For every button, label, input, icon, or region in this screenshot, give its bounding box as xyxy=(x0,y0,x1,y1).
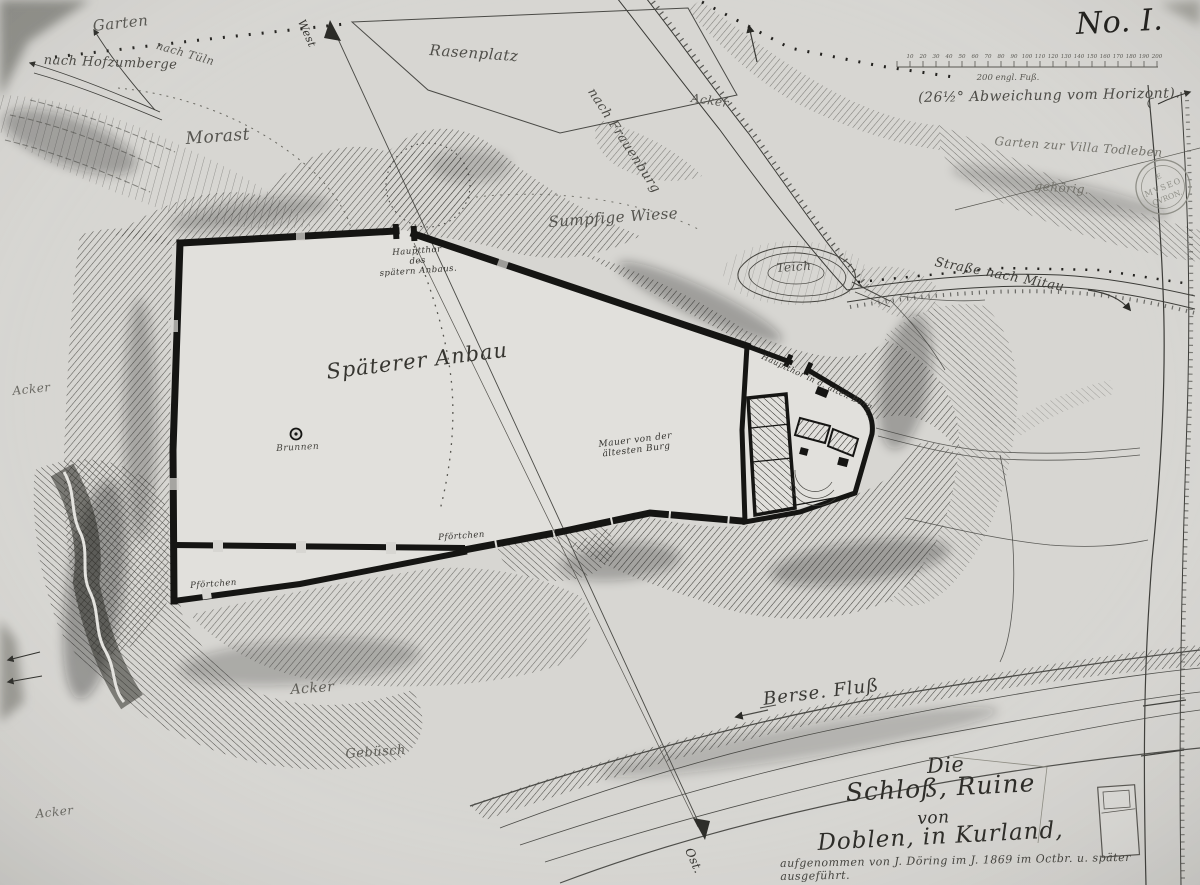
map-sheet: 1020 3040 5060 7080 90100 110120 130140 … xyxy=(0,0,1200,885)
photo-vignette xyxy=(0,0,1200,885)
map-drawing: 1020 3040 5060 7080 90100 110120 130140 … xyxy=(0,0,1200,885)
